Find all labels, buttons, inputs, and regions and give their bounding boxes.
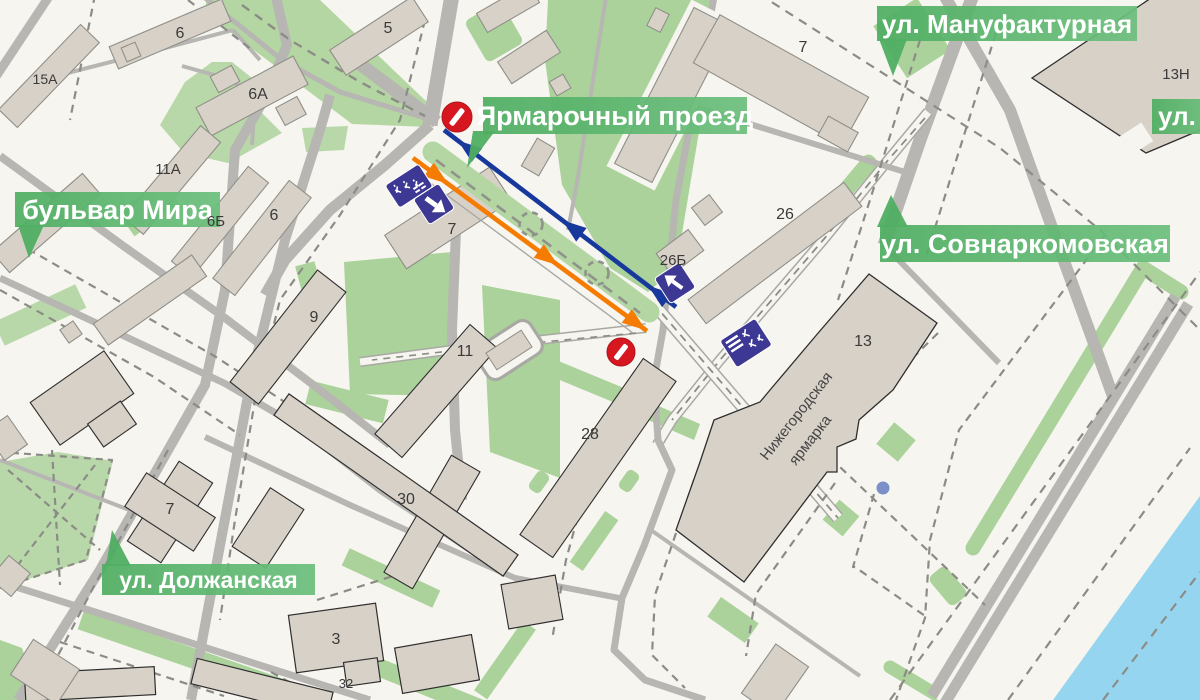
svg-text:9: 9: [310, 309, 319, 326]
svg-text:11: 11: [457, 343, 474, 360]
svg-text:13Н: 13Н: [1162, 66, 1190, 83]
svg-text:26: 26: [776, 206, 794, 223]
svg-text:7: 7: [448, 221, 457, 238]
svg-text:бульвар Мира: бульвар Мира: [22, 195, 214, 225]
svg-text:28: 28: [581, 426, 599, 443]
svg-text:32: 32: [339, 676, 353, 691]
svg-text:6А: 6А: [248, 86, 268, 103]
svg-text:7: 7: [166, 501, 175, 518]
svg-text:ул.: ул.: [1158, 101, 1196, 131]
svg-text:30: 30: [397, 491, 415, 508]
svg-text:26Б: 26Б: [660, 252, 687, 269]
svg-text:ул. Должанская: ул. Должанская: [119, 567, 297, 593]
svg-text:13: 13: [854, 333, 872, 350]
svg-text:7: 7: [799, 39, 808, 56]
svg-text:3: 3: [332, 631, 341, 648]
svg-text:15А: 15А: [33, 71, 59, 87]
svg-text:ул. Совнаркомовская: ул. Совнаркомовская: [881, 229, 1169, 259]
svg-text:6Б: 6Б: [207, 213, 225, 230]
svg-text:6: 6: [270, 207, 279, 224]
svg-text:6: 6: [176, 25, 185, 42]
svg-text:Ярмарочный проезд: Ярмарочный проезд: [477, 101, 754, 131]
svg-text:11А: 11А: [155, 161, 181, 178]
svg-text:ул. Мануфактурная: ул. Мануфактурная: [882, 9, 1132, 39]
svg-text:5: 5: [384, 20, 393, 37]
